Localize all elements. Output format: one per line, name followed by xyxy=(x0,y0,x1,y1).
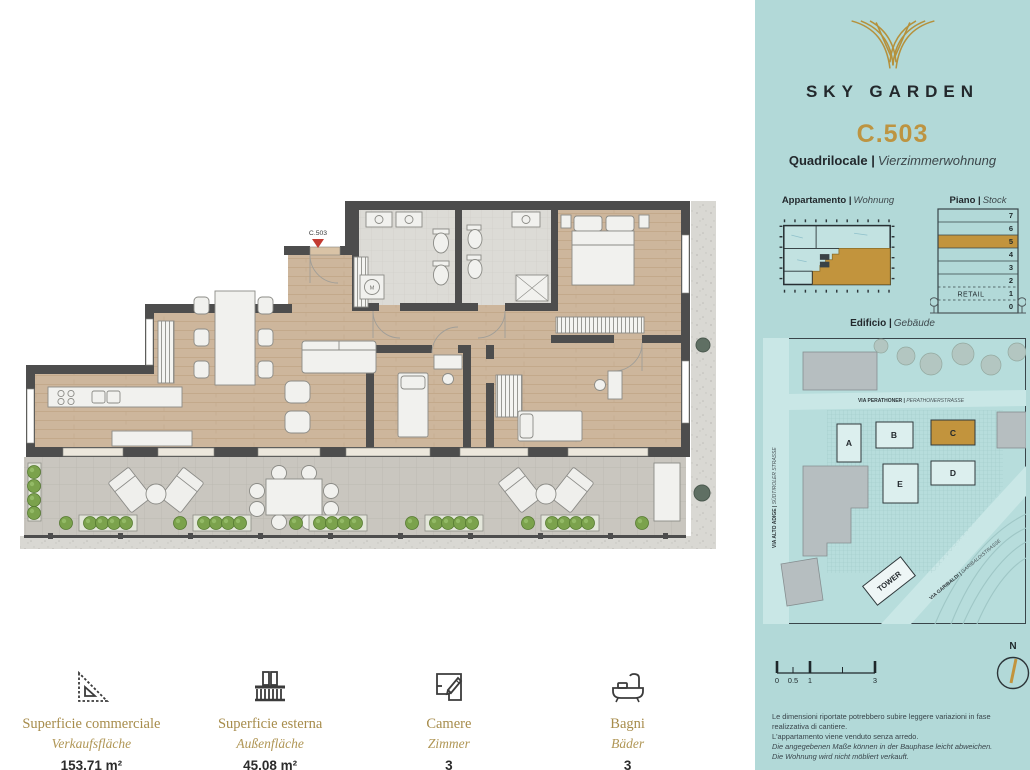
street-perathoner: VIA PERATHONER | PERATHONERSTRASSE xyxy=(858,398,965,404)
svg-text:7: 7 xyxy=(1009,211,1013,220)
site-map: A B C D E TOWER VIA PERATHONER | PERATHO… xyxy=(763,338,1026,624)
svg-text:3: 3 xyxy=(873,676,877,685)
retail-label: RETAIL xyxy=(958,292,985,299)
stat-rooms: Camere Zimmer 3 xyxy=(360,660,539,770)
bathtub-icon xyxy=(538,660,717,708)
set-square-icon xyxy=(2,660,181,708)
stat-bathrooms: Bagni Bäder 3 xyxy=(538,660,717,770)
scale-bar: 0 0.5 1 3 xyxy=(772,652,884,688)
stats-row: Superficie commerciale Verkaufsfläche 15… xyxy=(2,660,717,770)
stat-external-area: Superficie esterna Außenfläche 45.08 m² xyxy=(181,660,360,770)
washing-machine-label: M xyxy=(370,286,375,292)
highlighted-floor-row xyxy=(938,235,1018,248)
svg-text:A: A xyxy=(846,438,852,448)
stat-commercial-area: Superficie commerciale Verkaufsfläche 15… xyxy=(2,660,181,770)
building-section-label: Edificio |Gebäude xyxy=(755,318,1030,329)
svg-text:B: B xyxy=(891,430,897,440)
svg-text:6: 6 xyxy=(1009,224,1013,233)
svg-text:4: 4 xyxy=(1009,250,1014,259)
street-alto-adige: VIA ALTO ADIGE | SÜDTIROLER STRASSE xyxy=(771,447,778,548)
svg-text:0.5: 0.5 xyxy=(788,676,798,685)
floor-stack: 7 6 5 4 3 2 1 0 RETAIL xyxy=(930,207,1026,325)
svg-text:0: 0 xyxy=(775,676,779,685)
unit-marker: C.503 xyxy=(309,230,327,248)
svg-text:E: E xyxy=(897,479,903,489)
svg-text:0: 0 xyxy=(1009,302,1013,311)
brochure-page: C.503 M Superficie commerciale Verkaufsf… xyxy=(0,0,1030,770)
disclaimer: Le dimensioni riportate potrebbero subir… xyxy=(772,712,1022,762)
floor-plan: C.503 M xyxy=(8,195,718,551)
unit-code: C.503 xyxy=(755,120,1030,149)
svg-text:1: 1 xyxy=(808,676,812,685)
unit-type: Quadrilocale |Vierzimmerwohnung xyxy=(755,153,1030,168)
brand-title: SKY GARDEN xyxy=(755,82,1030,102)
svg-text:1: 1 xyxy=(1009,289,1013,298)
sky-garden-logo-icon xyxy=(847,16,939,78)
apartment-keyplan xyxy=(777,218,897,294)
svg-text:5: 5 xyxy=(1009,237,1013,246)
svg-text:2: 2 xyxy=(1009,276,1013,285)
entrance-arrow-icon xyxy=(312,239,324,248)
balcony-icon xyxy=(181,660,360,708)
svg-text:D: D xyxy=(950,468,956,478)
svg-text:C.503: C.503 xyxy=(309,230,327,237)
svg-text:N: N xyxy=(1009,641,1016,652)
svg-text:3: 3 xyxy=(1009,263,1013,272)
north-arrow-icon: N xyxy=(992,638,1030,694)
apartment-section-label: Appartamento |Wohnung xyxy=(765,195,911,206)
floor-section-label: Piano |Stock xyxy=(933,195,1023,206)
sidebar: SKY GARDEN C.503 Quadrilocale |Vierzimme… xyxy=(755,0,1030,770)
svg-text:C: C xyxy=(950,428,956,438)
rooms-icon xyxy=(360,660,539,708)
